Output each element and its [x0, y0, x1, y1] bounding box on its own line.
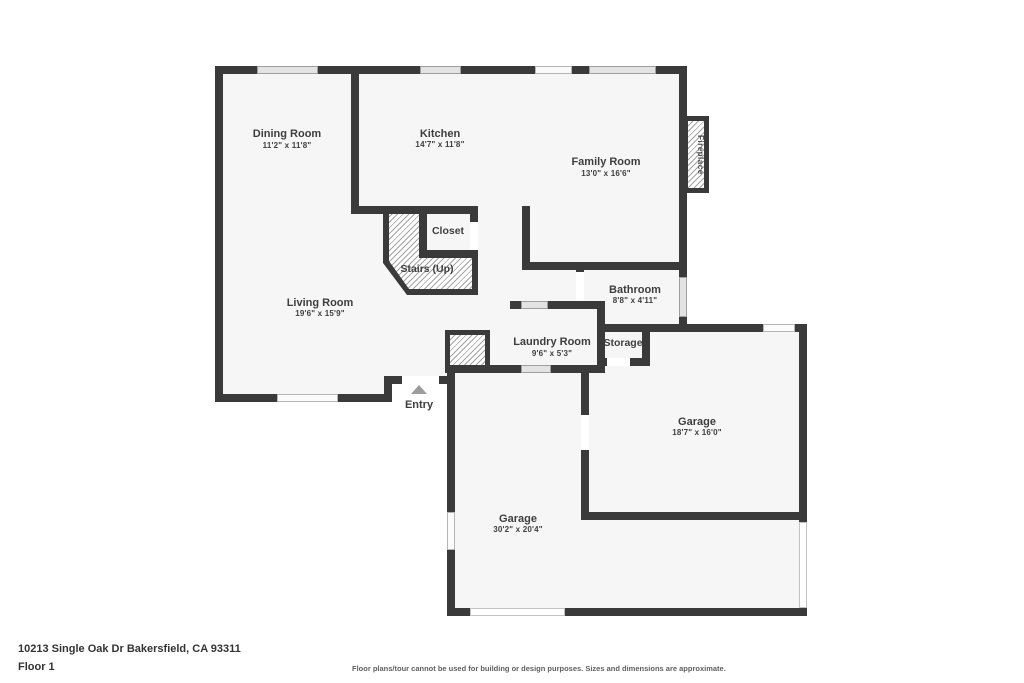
wall-garage-right [799, 324, 807, 522]
window-laundry-bottom [521, 365, 551, 373]
room-dims-bathroom: 8'8" x 4'11" [613, 297, 658, 305]
disclaimer-text: Floor plans/tour cannot be used for buil… [352, 664, 726, 673]
room-label-kitchen: Kitchen [420, 129, 460, 140]
room-dims-living: 19'6" x 15'9" [295, 310, 345, 318]
wall-kitchen-dining-divider [351, 66, 359, 214]
window-dining-top [257, 66, 318, 74]
window-garage-left [447, 512, 455, 550]
wall-closet-bottom [419, 250, 478, 258]
window-family-top [589, 66, 656, 74]
room-dims-laundry: 9'6" x 5'3" [532, 350, 572, 358]
room-dims-garage-main: 30'2" x 20'4" [493, 526, 543, 534]
room-label-storage: Storage [603, 338, 642, 349]
room-label-living: Living Room [287, 298, 354, 309]
room-label-stairs: Stairs (Up) [400, 264, 453, 275]
room-label-entry: Entry [405, 400, 433, 411]
floor-label: Floor 1 [18, 661, 55, 673]
entry-closet-hatch [450, 335, 485, 368]
room-dims-kitchen: 14'7" x 11'8" [415, 141, 464, 149]
floor-plan-canvas: Fireplace Dining Room 11'2" x 11'8" Kitc… [0, 0, 1024, 683]
window-garage-top [763, 324, 795, 332]
garage-door-right [799, 522, 807, 608]
door-storage [607, 358, 630, 366]
address-text: 10213 Single Oak Dr Bakersfield, CA 9331… [18, 643, 241, 655]
window-laundry-top [521, 301, 548, 309]
room-dims-dining: 11'2" x 11'8" [263, 142, 312, 150]
entry-opening [402, 376, 439, 384]
room-label-family: Family Room [571, 157, 640, 168]
wall-kitchen-bottom [351, 206, 478, 214]
entry-arrow-icon [411, 385, 427, 394]
window-bathroom-right [679, 277, 687, 317]
room-label-laundry: Laundry Room [513, 337, 591, 348]
window-living-bottom [277, 394, 338, 402]
wall-left-exterior [215, 66, 223, 402]
door-garage-divider [581, 415, 589, 450]
wall-garage-rear-bottom [581, 512, 807, 520]
wall-garage-left [447, 373, 455, 616]
wall-family-bottom [522, 262, 687, 270]
room-label-dining: Dining Room [253, 129, 321, 140]
room-label-garage-main: Garage [499, 514, 537, 525]
room-dims-garage-rear: 18'7" x 16'0" [672, 429, 722, 437]
room-label-fireplace: Fireplace [687, 121, 705, 188]
window-top-center [535, 66, 572, 74]
room-label-garage-rear: Garage [678, 417, 716, 428]
garage-door-bottom [470, 608, 565, 616]
door-closet [470, 222, 478, 250]
room-label-bathroom: Bathroom [609, 285, 661, 296]
wall-family-west-stub [522, 206, 530, 270]
room-label-closet: Closet [432, 226, 464, 237]
room-dims-family: 13'0" x 16'6" [581, 170, 631, 178]
door-bathroom [576, 272, 584, 301]
window-kitchen-top [420, 66, 461, 74]
